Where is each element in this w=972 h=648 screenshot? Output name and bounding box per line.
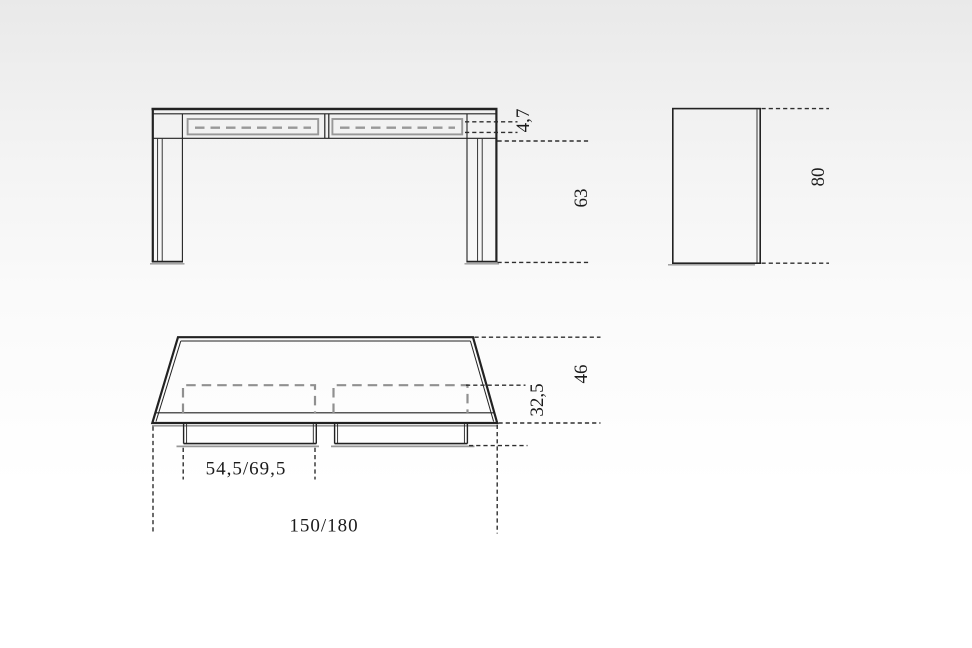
plan-drawer-2-hidden-outline bbox=[334, 385, 468, 413]
drawer-front-1-frame bbox=[188, 119, 319, 134]
technical-drawing-canvas: 4,7 63 80 bbox=[0, 0, 972, 648]
front-view: 4,7 63 bbox=[150, 109, 592, 264]
drawer-front-2 bbox=[332, 119, 462, 134]
drawing-svg: 4,7 63 80 bbox=[0, 0, 972, 648]
dim-label-depth: 46 bbox=[571, 365, 592, 384]
dim-label-height: 80 bbox=[808, 168, 829, 187]
dim-label-leg-height: 63 bbox=[571, 189, 592, 208]
side-view: 80 bbox=[668, 109, 829, 265]
plan-tabletop-outline bbox=[152, 337, 497, 423]
dim-label-drawer-width: 54,5/69,5 bbox=[206, 459, 287, 480]
plan-view: 32,5 46 54,5/69,5 150/180 bbox=[152, 337, 601, 536]
plan-drawer-1-hidden-outline bbox=[183, 385, 315, 413]
plan-right-edge-inner bbox=[470, 341, 493, 422]
plan-left-edge-inner bbox=[156, 341, 181, 422]
leg-left bbox=[150, 109, 185, 264]
dim-label-drawer-depth: 32,5 bbox=[527, 383, 548, 416]
drawer-front-2-frame bbox=[332, 119, 462, 134]
drawer-front-1 bbox=[188, 119, 319, 134]
dim-label-table-width: 150/180 bbox=[289, 516, 358, 537]
dim-label-drawer-front-height: 4,7 bbox=[513, 109, 534, 133]
side-view-outline bbox=[673, 109, 760, 264]
